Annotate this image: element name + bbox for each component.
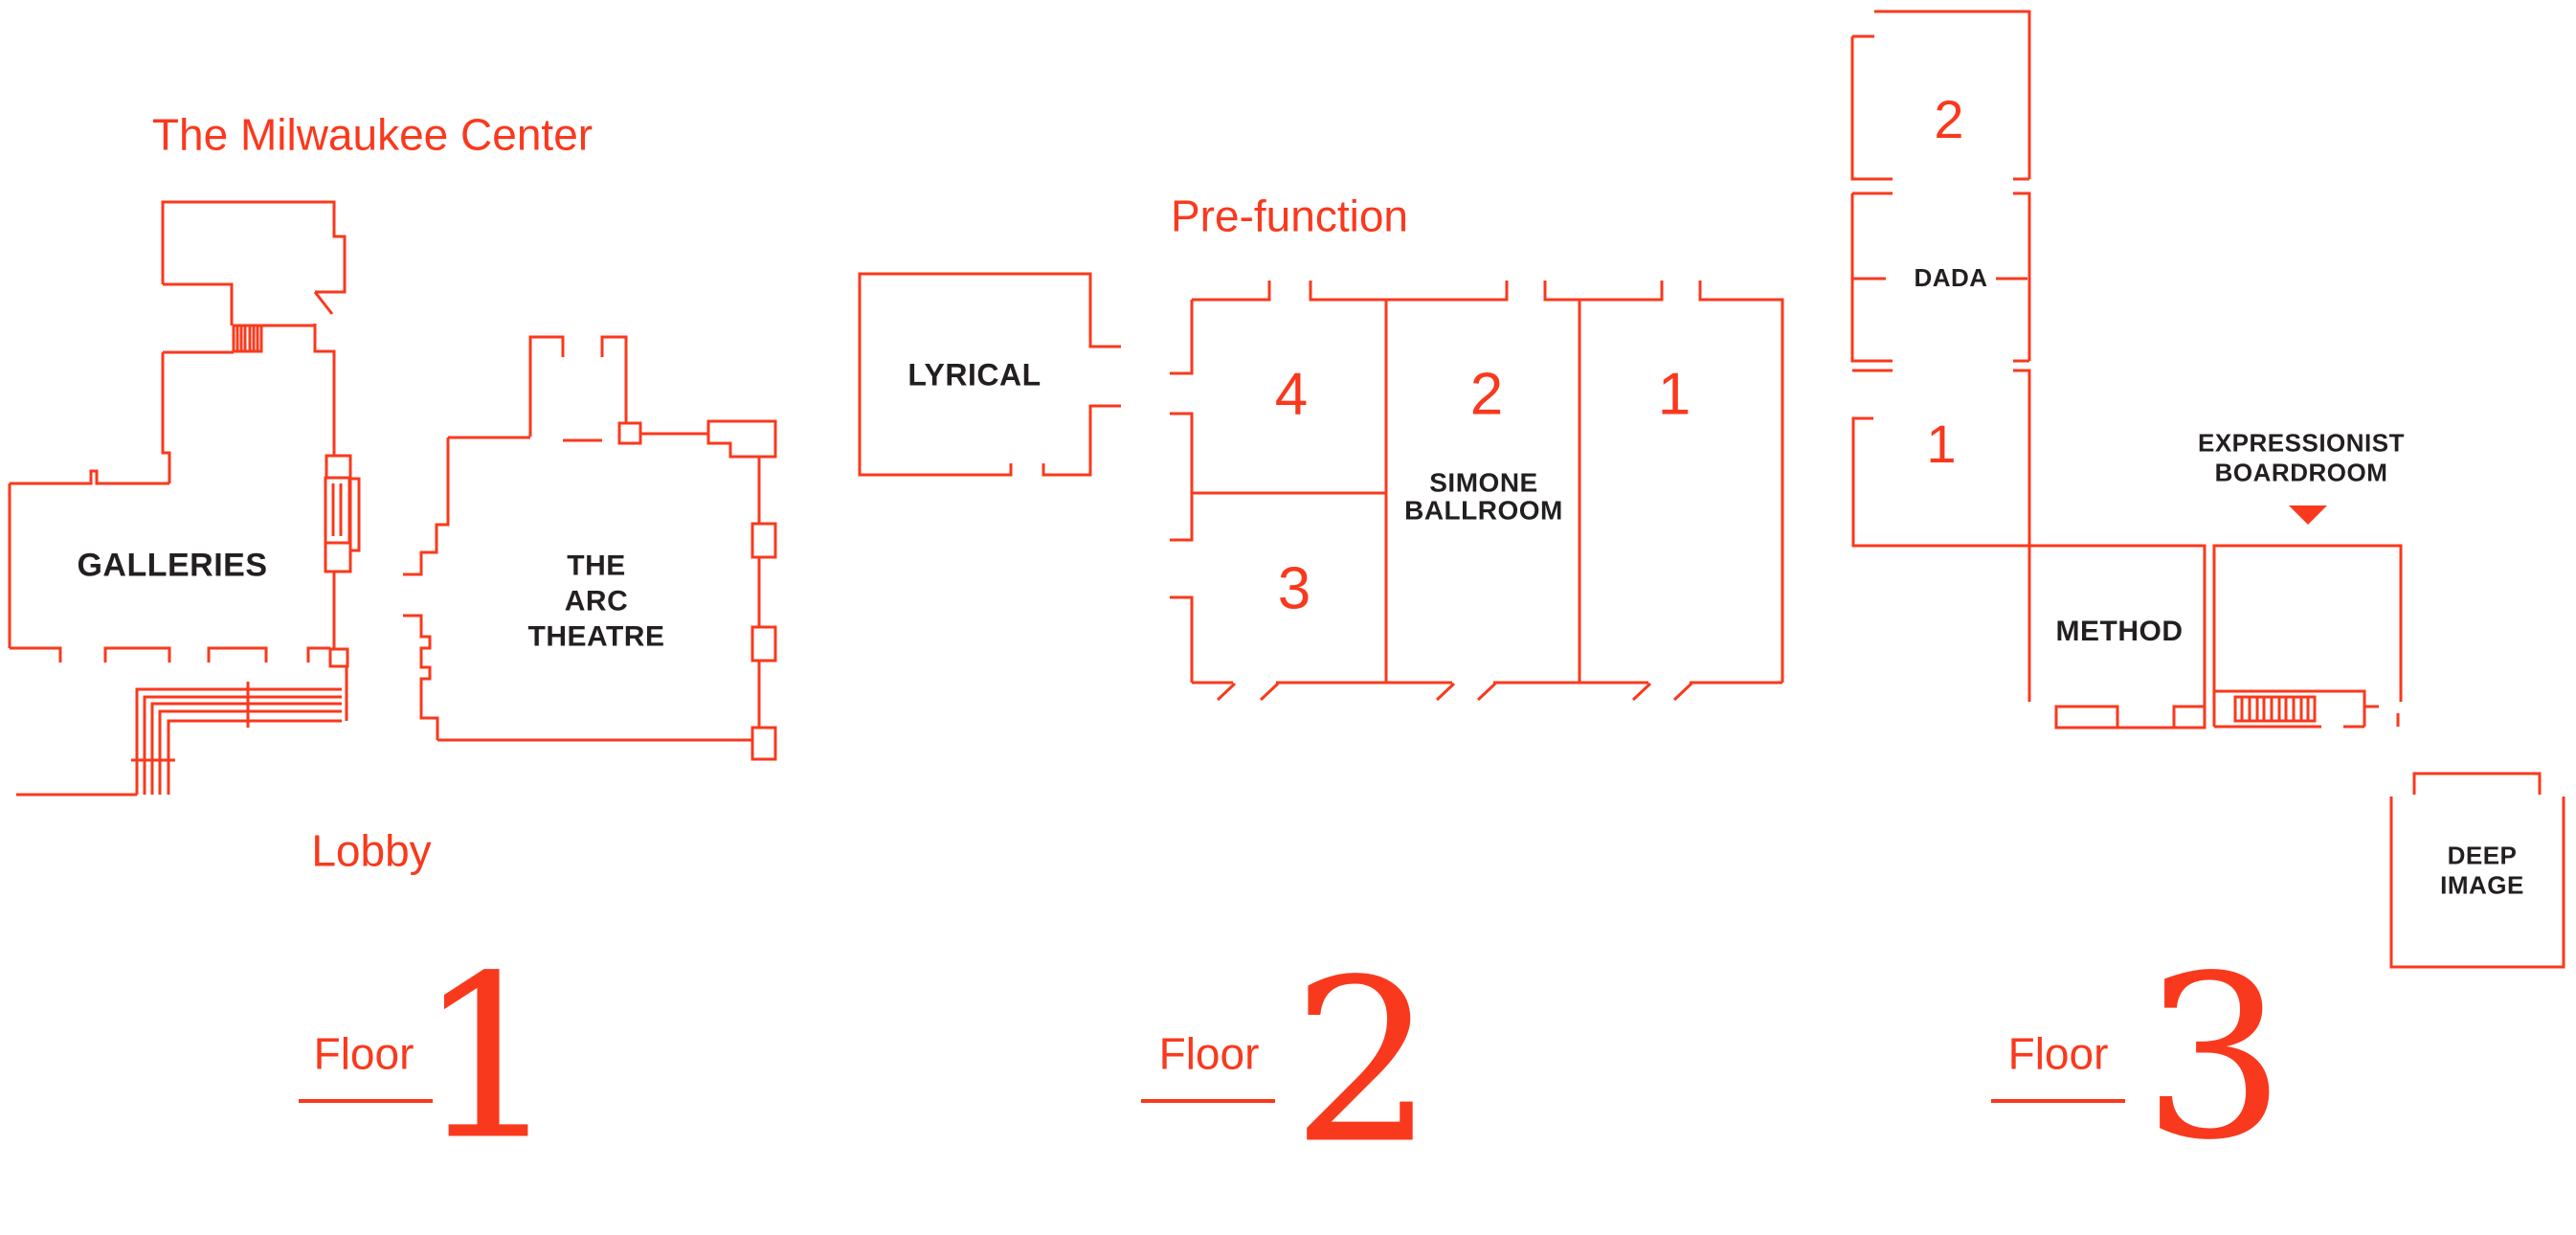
stairs-hatch-icon bbox=[234, 326, 261, 351]
venue-floor-map: The Milwaukee Center GALLERIES THE ARC T… bbox=[0, 0, 2576, 1235]
tall-building-left-wall bbox=[1852, 36, 1893, 370]
galleries-bottom-wall-with-doors bbox=[10, 648, 330, 662]
down-arrow-icon bbox=[2289, 505, 2327, 525]
milwaukee-tower-outline bbox=[10, 202, 347, 721]
door-swing-icon bbox=[1218, 684, 1691, 700]
arc-theatre-line: THEATRE bbox=[528, 619, 665, 655]
room-label-lyrical: LYRICAL bbox=[907, 358, 1041, 393]
ballroom-section-4: 4 bbox=[1275, 360, 1308, 428]
boardroom-line: BOARDROOM bbox=[2198, 458, 2405, 487]
escalator-lines-icon bbox=[16, 682, 342, 795]
floor2-underline bbox=[1141, 1099, 1275, 1103]
lobby-label: Lobby bbox=[311, 826, 431, 877]
arc-theatre-line: THE bbox=[528, 550, 665, 585]
floor2-word: Floor bbox=[1159, 1029, 1260, 1080]
floor1-underline bbox=[299, 1099, 433, 1103]
floor1-word: Floor bbox=[314, 1029, 414, 1080]
ballroom-section-1: 1 bbox=[1658, 360, 1691, 428]
simone-line: BALLROOM bbox=[1404, 497, 1563, 525]
elevator-block-icon bbox=[325, 456, 359, 666]
floor1-number: 1 bbox=[416, 947, 560, 1172]
deep-image-line: DEEP bbox=[2440, 841, 2524, 870]
boardroom-line: EXPRESSIONIST bbox=[2198, 428, 2405, 458]
arc-theatre-line: ARC bbox=[528, 585, 665, 620]
stairs-hatch-icon bbox=[2235, 697, 2315, 721]
floor3-underline bbox=[1991, 1099, 2125, 1103]
door-swing-icon bbox=[315, 292, 332, 314]
ballroom-section-3: 3 bbox=[1278, 554, 1310, 622]
theatre-door-box bbox=[752, 524, 775, 557]
ballroom-section-2: 2 bbox=[1470, 360, 1503, 428]
milwaukee-building-outline bbox=[10, 202, 359, 795]
prefunction-label: Pre-function bbox=[1171, 191, 1408, 242]
floor3-section-1: 1 bbox=[1926, 414, 1956, 475]
theatre-door-box bbox=[619, 423, 640, 443]
floor3-word: Floor bbox=[2008, 1029, 2109, 1080]
floor3-number: 3 bbox=[2142, 947, 2286, 1172]
arc-theatre-outline bbox=[403, 337, 775, 759]
theatre-door-box bbox=[752, 627, 775, 661]
deep-image-line: IMAGE bbox=[2440, 870, 2524, 900]
building-title: The Milwaukee Center bbox=[152, 110, 593, 161]
room-label-method: METHOD bbox=[2056, 616, 2184, 649]
room-label-expressionist-boardroom: EXPRESSIONIST BOARDROOM bbox=[2198, 428, 2405, 486]
floor3-section-2: 2 bbox=[1934, 89, 1963, 150]
room-label-simone-ballroom: SIMONE BALLROOM bbox=[1404, 469, 1563, 526]
room-label-galleries: GALLERIES bbox=[77, 547, 267, 584]
theatre-door-box bbox=[752, 728, 775, 759]
ballroom-left-wall-with-doors bbox=[1170, 300, 1192, 683]
room-label-dada: DADA bbox=[1914, 264, 1987, 293]
room-label-arc-theatre: THE ARC THEATRE bbox=[528, 550, 665, 656]
boardroom-outline bbox=[2214, 505, 2401, 727]
room-label-deep-image: DEEP IMAGE bbox=[2440, 841, 2524, 899]
simone-line: SIMONE bbox=[1404, 469, 1563, 497]
floor2-number: 2 bbox=[1291, 951, 1435, 1176]
